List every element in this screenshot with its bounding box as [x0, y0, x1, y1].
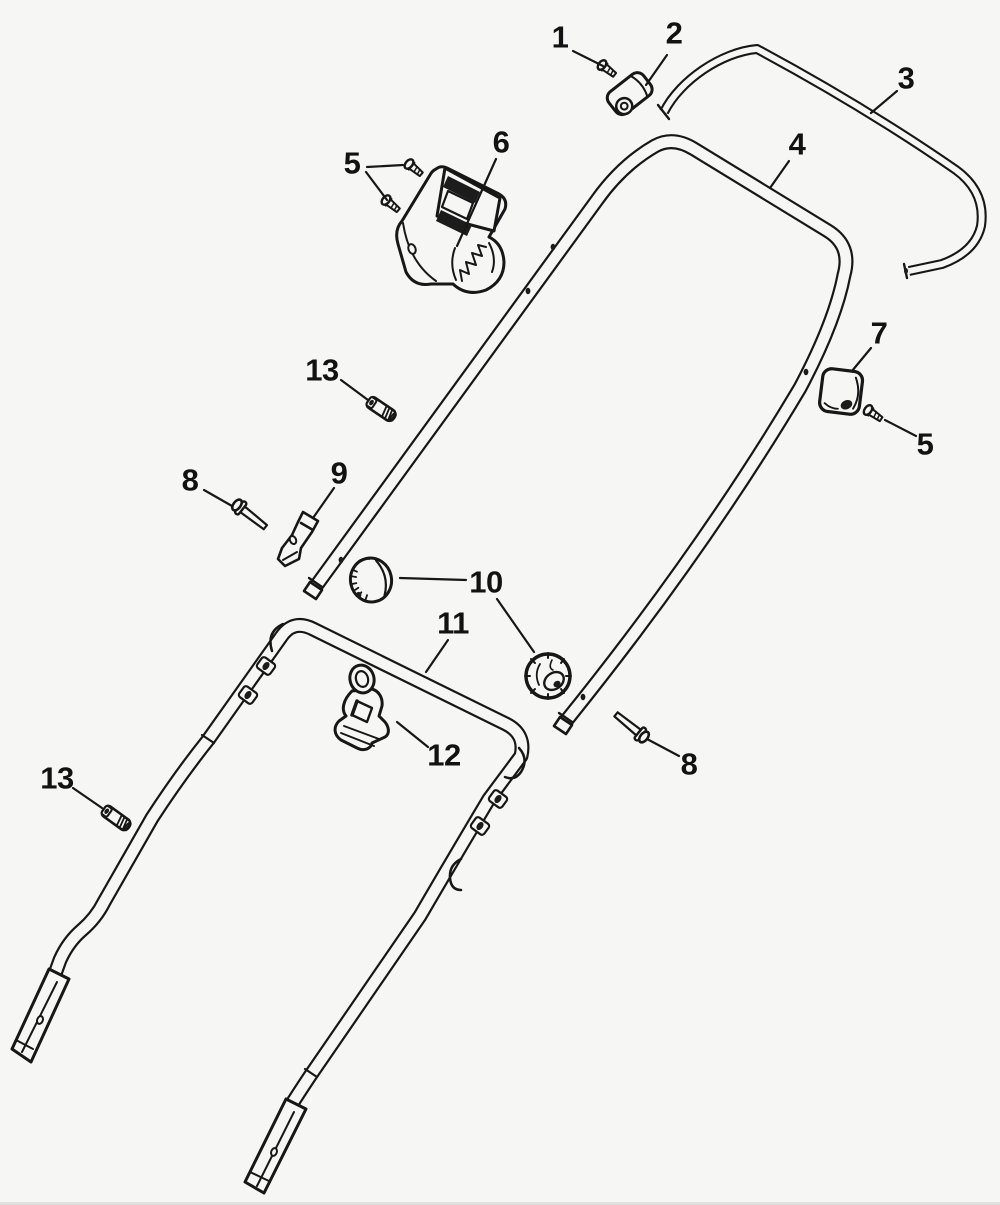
part-13-pin-upper: [365, 396, 398, 423]
callout-number: 5: [917, 427, 934, 462]
leader-line: [770, 161, 789, 188]
callout-number: 7: [871, 316, 888, 351]
leader-line: [73, 788, 102, 808]
part-12-cable-clip: [335, 662, 388, 749]
callout-number: 4: [789, 127, 807, 162]
callout-part-5: 5: [885, 420, 934, 462]
diagram-canvas: 123456751389101112138: [0, 0, 1000, 1205]
leader-line: [647, 739, 679, 756]
part-10-knob-left: [346, 554, 396, 606]
callout-part-7: 7: [852, 316, 887, 372]
part-10-knob-right: [525, 653, 571, 699]
callout-number: 5: [344, 146, 361, 181]
leader-line: [313, 488, 334, 518]
leader-line: [885, 420, 916, 436]
callout-number: 12: [427, 738, 460, 773]
callout-part-11: 11: [426, 606, 469, 673]
leader-line: [341, 380, 368, 400]
callout-layer: 123456751389101112138: [40, 16, 933, 809]
callout-part-1: 1: [552, 20, 603, 67]
callout-part-12: 12: [397, 722, 461, 773]
callout-number: 1: [552, 20, 569, 55]
leader-line: [367, 165, 403, 167]
callout-part-2: 2: [646, 16, 682, 86]
leader-line: [426, 640, 448, 672]
callout-number: 10: [469, 565, 502, 600]
leader-line: [852, 348, 871, 371]
part-13-pin-lower: [100, 804, 132, 832]
leader-line: [397, 722, 428, 747]
callout-number: 8: [681, 747, 698, 782]
leader-line: [204, 490, 232, 506]
callout-part-3: 3: [871, 61, 915, 114]
callout-part-8: 8: [182, 463, 232, 507]
part-9-bracket: [278, 512, 318, 566]
callout-part-13: 13: [305, 353, 368, 401]
lower-handle-left-end: [12, 969, 69, 1062]
part-8-bolt-right: [611, 709, 651, 746]
leader-line: [366, 172, 387, 200]
part-8-bolt-left: [230, 497, 270, 533]
leader-line: [400, 578, 466, 580]
callout-number: 13: [305, 353, 339, 388]
leader-line: [871, 91, 897, 113]
callout-number: 13: [40, 761, 74, 796]
callout-part-9: 9: [313, 456, 348, 519]
callout-part-8: 8: [647, 739, 698, 782]
callout-number: 9: [331, 456, 348, 491]
part-1-screw: [596, 59, 618, 79]
callout-number: 6: [493, 125, 510, 160]
callout-number: 3: [898, 61, 915, 96]
rivet-holes: [339, 244, 809, 700]
callout-number: 8: [182, 463, 199, 498]
part-4-upper-handle: [304, 142, 846, 734]
callout-part-5: 5: [344, 146, 403, 201]
lower-handle-right-end: [245, 1099, 306, 1193]
part-11-lower-handle: [12, 624, 525, 1193]
part-7-clamp-block: [819, 368, 864, 416]
part-5-screw-a: [403, 158, 425, 179]
callout-part-13: 13: [40, 761, 102, 809]
leader-line: [497, 599, 534, 652]
callout-part-4: 4: [770, 127, 807, 189]
part-5-screw-b: [380, 194, 402, 215]
leader-line: [573, 51, 603, 66]
leader-line: [646, 55, 667, 85]
callout-number: 11: [437, 606, 469, 641]
callout-number: 2: [666, 16, 683, 51]
part-5-screw-c: [862, 404, 884, 424]
part-6-switch-housing: [397, 167, 506, 293]
